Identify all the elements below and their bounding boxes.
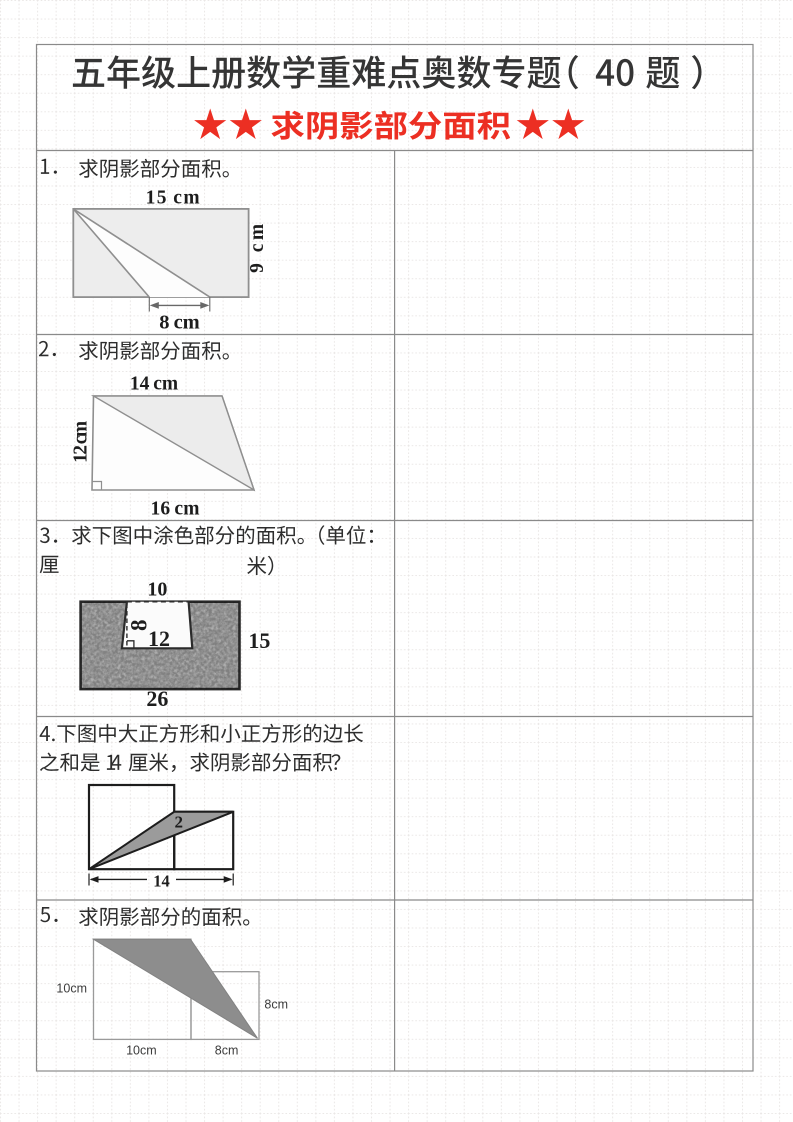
svg-text:8 cm: 8 cm [159, 312, 200, 334]
svg-text:14: 14 [153, 872, 170, 891]
svg-text:10cm: 10cm [126, 1044, 157, 1058]
svg-text:12: 12 [148, 626, 170, 651]
svg-text:14 cm: 14 cm [130, 374, 178, 395]
svg-text:10: 10 [147, 579, 167, 601]
svg-text:10cm: 10cm [56, 982, 87, 996]
svg-text:26: 26 [146, 686, 168, 711]
svg-text:8cm: 8cm [264, 998, 288, 1012]
svg-text:12 cm: 12 cm [70, 421, 91, 463]
svg-text:8cm: 8cm [215, 1044, 239, 1058]
svg-text:2: 2 [174, 813, 183, 832]
svg-text:15: 15 [248, 628, 270, 653]
svg-text:15 cm: 15 cm [146, 187, 200, 208]
svg-text:16 cm: 16 cm [151, 499, 200, 520]
svg-text:9 cm: 9 cm [247, 224, 268, 273]
